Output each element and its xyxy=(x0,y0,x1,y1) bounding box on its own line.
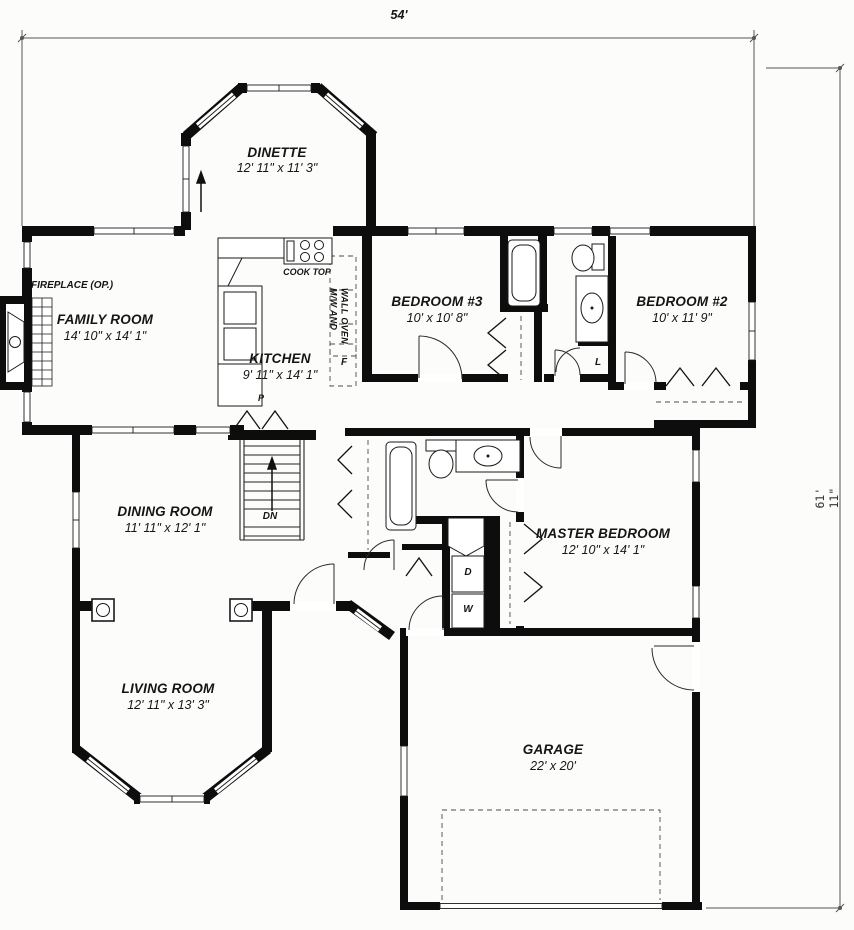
room-size-family-room: 14' 10" x 14' 1" xyxy=(64,330,146,344)
room-size-living-room: 12' 11" x 13' 3" xyxy=(127,699,209,713)
room-label-family-room: FAMILY ROOM xyxy=(57,313,153,328)
room-size-bedroom-2: 10' x 11' 9" xyxy=(652,312,712,326)
toilet-master xyxy=(429,450,453,478)
room-label-bedroom-3: BEDROOM #3 xyxy=(391,295,482,310)
kitchen-counter-top xyxy=(218,238,284,258)
room-label-master-bedroom: MASTER BEDROOM xyxy=(536,527,670,542)
overall-height-dimension: 61' 11" xyxy=(813,482,841,509)
garage-ceiling-dashed xyxy=(442,810,660,900)
shower-stall xyxy=(448,518,484,556)
kitchen-counter-corner xyxy=(218,258,242,286)
toilet-main xyxy=(572,245,594,271)
burner xyxy=(315,253,324,262)
floor-plan-sheet: 54' 61' 11" DINETTE 12' 11" x 11' 3" FAM… xyxy=(0,0,854,930)
room-label-bedroom-2: BEDROOM #2 xyxy=(636,295,727,310)
washer-label: W xyxy=(463,604,472,615)
room-label-kitchen: KITCHEN xyxy=(249,352,310,367)
wall-oven-label: M/W ANDWALL OVEN xyxy=(327,288,350,344)
stairs-down-label: DN xyxy=(261,511,279,522)
wall-oven-line2: WALL OVEN xyxy=(340,288,350,344)
room-size-bedroom-3: 10' x 10' 8" xyxy=(407,312,468,326)
room-size-kitchen: 9' 11" x 14' 1" xyxy=(243,369,318,383)
toilet-tank-master xyxy=(426,440,456,451)
burner xyxy=(301,253,310,262)
dryer-label: D xyxy=(464,567,471,578)
column-post-circle xyxy=(97,604,110,617)
column-post-circle xyxy=(235,604,248,617)
room-size-master-bedroom: 12' 10" x 14' 1" xyxy=(562,544,644,558)
refrigerator-label: F xyxy=(341,357,347,368)
wall-oven-line1: M/W AND xyxy=(328,288,338,330)
room-label-dining-room: DINING ROOM xyxy=(117,505,212,520)
room-size-dinette: 12' 11" x 11' 3" xyxy=(237,162,318,176)
room-size-dining-room: 11' 11" x 12' 1" xyxy=(125,522,206,536)
room-size-garage: 22' x 20' xyxy=(530,760,576,774)
room-label-living-room: LIVING ROOM xyxy=(122,682,215,697)
fireplace-label: FIREPLACE (OP.) xyxy=(31,280,113,291)
dimension-ticks xyxy=(20,36,842,910)
overall-width-dimension: 54' xyxy=(391,9,408,23)
burner xyxy=(315,241,324,250)
cooktop-label: COOK TOP xyxy=(283,268,331,278)
pantry-label: P xyxy=(258,394,264,404)
linen-closet-label: L xyxy=(595,357,601,368)
kitchen-sink-1 xyxy=(224,292,256,324)
room-label-garage: GARAGE xyxy=(523,743,583,758)
room-label-dinette: DINETTE xyxy=(247,146,306,161)
floor-plan-drawing xyxy=(0,0,854,930)
burner xyxy=(301,241,310,250)
